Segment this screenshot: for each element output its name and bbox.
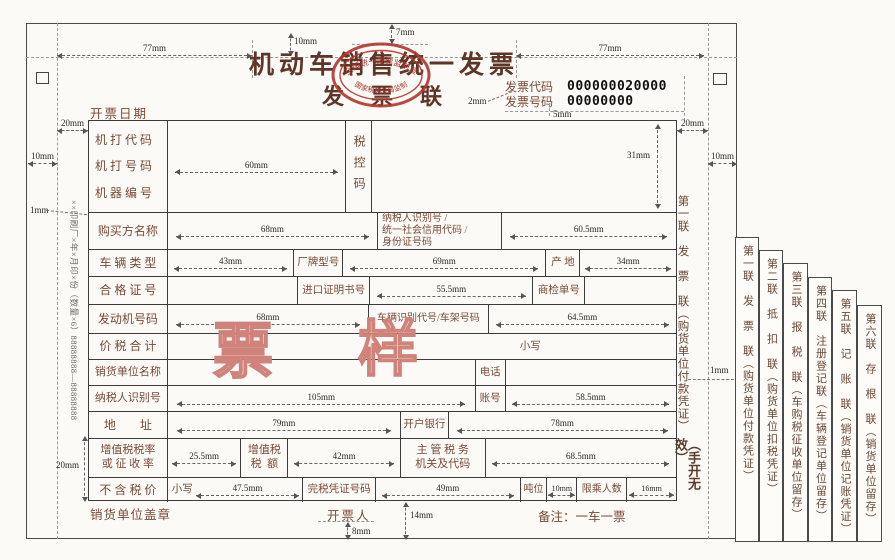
cell-buyer-label: 购买方名称	[89, 213, 167, 249]
seller-seal-label: 销货单位盖章	[90, 504, 171, 523]
machine-id-label: 机 器 编 号	[95, 186, 152, 201]
invoice-table: 机 打 代 码 机 打 号 码 机 器 编 号 60mm 税控码 31mm 购买…	[88, 120, 677, 501]
measure-label: 105mm	[307, 393, 335, 402]
cell-brand-model-label: 厂牌型号	[293, 250, 342, 276]
stamp-arc-top-text: 全国统一发票监制章	[343, 56, 420, 77]
measure-69mm: 69mm	[350, 257, 538, 269]
measure-58.5mm: 58.5mm	[512, 393, 669, 405]
cell-vat-rate-label: 增值税税率 或 征 收 率	[89, 439, 167, 477]
cell-vat-amount-value: 42mm	[287, 439, 400, 477]
cell-passengers-label: 限乘人数	[576, 478, 626, 502]
cell-tax-authority-label: 主 管 税 务 机关及代码	[400, 439, 485, 477]
cell-seller-label: 销货单位名称	[89, 360, 167, 385]
measure-79mm: 79mm	[177, 419, 391, 431]
measure-68mm-buyer: 68mm	[176, 225, 369, 237]
vehicle-type-label: 车 辆 类 型	[99, 256, 156, 271]
measure-60.5mm: 60.5mm	[510, 225, 667, 237]
buyer-label: 购买方名称	[98, 224, 158, 239]
cell-vin-value: 64.5mm	[488, 305, 676, 333]
svg-text:国家税务总局监制: 国家税务总局监制	[353, 80, 409, 96]
measure-label: 47.5mm	[233, 484, 263, 493]
copy-strip-1: 第一联 发 票 联（购货单位付款凭证）	[735, 237, 759, 542]
remark-label: 备注：一车一票	[538, 506, 626, 525]
copy-strip-3: 第三联 报 税 联（车购税征收单位留存）	[783, 263, 808, 542]
row-vat: 增值税税率 或 征 收 率 25.5mm 增值税 税 额 42mm 主 管 税 …	[89, 438, 676, 477]
measure-68.5mm: 68.5mm	[492, 452, 669, 464]
measure-60mm: 60mm	[175, 161, 338, 173]
taxid-label-line3: 身份证号码	[382, 237, 432, 249]
row-buyer: 购买方名称 68mm 纳税人识别号 / 统一社会信用代码 / 身份证号码 60.…	[89, 212, 676, 249]
invoice-supervision-stamp: 全国统一发票监制章 国家税务总局监制	[330, 41, 432, 109]
cell-tax-control-area: 31mm	[371, 121, 676, 212]
measure-10mm-tonnage: 10mm	[548, 485, 575, 496]
tax-authority-label-line2: 机关及代码	[415, 458, 470, 472]
cell-phone-label: 电话	[475, 360, 505, 385]
machine-number-label: 机 打 号 码	[95, 159, 152, 174]
row-taxpayer-id: 纳税人识别号 105mm 账号 58.5mm	[89, 385, 676, 411]
cell-address-value: 79mm	[167, 412, 400, 438]
taxpayer-id-label: 纳税人识别号	[95, 392, 161, 406]
copy-strip-5-label: 第五联 记 账 联（销货单位记账凭证）	[839, 291, 850, 541]
registration-square-right	[713, 73, 727, 85]
seller-label: 销货单位名称	[95, 366, 161, 380]
measure-label: 58.5mm	[576, 393, 606, 402]
stamp-arc-bottom-text: 国家税务总局监制	[353, 80, 409, 96]
origin-label: 产 地	[551, 256, 575, 269]
measure-49mm: 49mm	[382, 484, 514, 496]
measure-label: 60.5mm	[574, 225, 604, 234]
leader-line	[688, 379, 734, 380]
measure-label: 60mm	[245, 161, 268, 170]
copy-strip-4-label: 第四联 注册登记联（车辆登记单位留存）	[815, 278, 826, 541]
svg-text:全国统一发票监制章: 全国统一发票监制章	[343, 56, 420, 77]
measure-label: 25.5mm	[189, 452, 219, 461]
measure-label: 43mm	[219, 257, 242, 266]
measure-label: 64.5mm	[567, 313, 597, 322]
measure-43mm: 43mm	[174, 257, 287, 269]
measure-label: 69mm	[433, 257, 456, 266]
cell-tax-control: 税控码	[345, 121, 371, 212]
measure-label: 42mm	[333, 452, 356, 461]
cell-vehicle-type-value: 43mm	[167, 250, 294, 276]
measure-78mm: 78mm	[457, 419, 668, 431]
cell-vat-rate-value: 25.5mm	[167, 439, 241, 477]
cell-passengers-value: 16mm	[626, 478, 676, 502]
invoice-code-block: 发票代码 000000020000 发票号码 00000000	[505, 79, 690, 109]
handwritten-invalid-note: （手开无效）	[674, 438, 700, 502]
cell-buyer-value: 68mm	[167, 213, 377, 249]
copy-strip-5: 第五联 记 账 联（销货单位记账凭证）	[832, 290, 857, 542]
cell-account-value: 58.5mm	[505, 386, 676, 411]
cert-no-label: 合 格 证 号	[99, 283, 156, 298]
measure-label: 5mm	[553, 110, 572, 119]
copy-strip-4: 第四联 注册登记联（车辆登记单位留存）	[808, 277, 832, 542]
vat-rate-label-line2: 或 征 收 率	[102, 458, 154, 472]
cell-cert-value	[167, 277, 298, 304]
measure-label: 49mm	[436, 484, 459, 493]
cell-phone-value	[505, 360, 676, 385]
measure-label: 20mm	[56, 461, 79, 470]
printer-info-line: ××印刷厂×年×月印×份（数量×6）88888888—88888888	[68, 200, 80, 470]
cell-account-label: 账号	[475, 386, 505, 411]
cell-tax-authority-value: 68.5mm	[485, 439, 676, 477]
cell-inspection-label: 商检单号	[532, 277, 584, 304]
copy-strip-3-label: 第三联 报 税 联（车购税征收单位留存）	[790, 264, 801, 541]
cell-taxpayer-value: 105mm	[167, 386, 475, 411]
measure-34mm: 34mm	[585, 257, 671, 269]
measure-label: 55.5mm	[436, 285, 466, 294]
measure-label: 31mm	[627, 151, 650, 160]
cell-import-cert-label: 进口证明书号	[297, 277, 369, 304]
tax-cert-no-label: 完税凭证号码	[308, 483, 371, 496]
cell-engine-label: 发动机号码	[89, 305, 167, 333]
measure-label: 2mm	[468, 97, 487, 106]
phone-label: 电话	[480, 366, 501, 379]
invoice-number-value: 00000000	[567, 95, 634, 108]
cell-inspection-value	[584, 277, 676, 304]
cell-cert-label: 合 格 证 号	[89, 277, 167, 304]
vat-rate-label-line1: 增值税税率	[100, 444, 155, 458]
measure-label: 10mm	[552, 485, 572, 493]
tax-authority-label-line1: 主 管 税 务	[417, 444, 469, 458]
cell-machine-labels: 机 打 代 码 机 打 号 码 机 器 编 号	[89, 121, 167, 212]
measure-25.5mm: 25.5mm	[172, 452, 236, 464]
cell-bank-label: 开户银行	[400, 412, 448, 438]
cell-import-cert-value: 55.5mm	[369, 277, 532, 304]
code-block-edge-guide	[684, 76, 685, 121]
measure-label: 68mm	[261, 225, 284, 234]
cell-address-label: 地 址	[89, 412, 167, 438]
copy-strip-6-label: 第六联 存 根 联（销货单位留存）	[864, 306, 875, 541]
copy-strip-2-label: 第二联 抵 扣 联（购货单位扣税凭证）	[766, 251, 777, 541]
inner-copy-text: 第一联 发 票 联（购货单位付款凭证）	[676, 195, 688, 435]
measure-8mm	[344, 523, 352, 539]
cell-tonnage-value: 10mm	[546, 478, 576, 502]
right-margin-guide	[708, 23, 709, 539]
registration-square-left	[36, 72, 49, 84]
taxid-label-line1: 纳税人识别号 /	[382, 213, 447, 225]
passengers-label: 限乘人数	[582, 484, 622, 497]
measure-105mm: 105mm	[177, 393, 466, 405]
specimen-watermark-char2: 样	[358, 320, 418, 380]
measure-42mm: 42mm	[294, 452, 394, 464]
specimen-watermark-char1: 票	[213, 322, 273, 382]
cell-vehicle-type-label: 车 辆 类 型	[89, 250, 167, 276]
vat-amount-label-line2: 税 额	[251, 458, 279, 472]
measure-31mm	[654, 125, 662, 208]
inspection-no-label: 商检单号	[538, 284, 580, 297]
row-machine-codes: 机 打 代 码 机 打 号 码 机 器 编 号 60mm 税控码 31mm	[89, 121, 676, 212]
row-price-no-tax: 不 含 税 价 小写 47.5mm 完税凭证号码 49mm 吨位	[89, 477, 676, 502]
measure-label: 14mm	[410, 511, 433, 520]
cell-taxpayer-label: 纳税人识别号	[89, 386, 167, 411]
cell-bank-value: 78mm	[448, 412, 676, 438]
measure-label: 78mm	[551, 419, 574, 428]
cell-origin-label: 产 地	[545, 250, 579, 276]
engine-no-label: 发动机号码	[98, 312, 158, 327]
measure-47.5mm: 47.5mm	[196, 484, 300, 496]
tonnage-label: 吨位	[523, 484, 543, 497]
invoice-number-label: 发票号码	[505, 93, 567, 110]
row-vehicle-type: 车 辆 类 型 43mm 厂牌型号 69mm 产 地 34mm	[89, 249, 676, 276]
machine-code-label: 机 打 代 码	[95, 133, 152, 148]
measure-1mm-right: 1mm	[710, 366, 729, 375]
copy-strip-6: 第六联 存 根 联（销货单位留存）	[857, 305, 882, 542]
cell-vat-amount-label: 增值税 税 额	[240, 439, 287, 477]
cell-origin-value: 34mm	[579, 250, 676, 276]
cell-tax-cert-label: 完税凭证号码	[302, 478, 375, 502]
address-label: 地 址	[104, 418, 152, 433]
numerals-label: 小写	[520, 340, 541, 353]
measure-label: 7mm	[396, 28, 415, 37]
copy-strip-2: 第二联 抵 扣 联（购货单位扣税凭证）	[759, 250, 783, 542]
account-label: 账号	[480, 392, 501, 405]
measure-label: 16mm	[641, 485, 661, 493]
numerals-label: 小写	[172, 483, 193, 496]
price-no-tax-label: 不 含 税 价	[99, 483, 156, 498]
tax-control-label: 税控码	[351, 135, 366, 198]
code-block-underline	[505, 111, 684, 112]
measure-64.5mm: 64.5mm	[496, 313, 668, 325]
measure-label: 34mm	[617, 257, 640, 266]
invoice-spec-page: 77mm 77mm 10mm 7mm 机动车销售统一发票 发票联 全国统一发票监…	[0, 0, 895, 560]
row-address: 地 址 79mm 开户银行 78mm	[89, 411, 676, 438]
cell-price-no-tax-label: 不 含 税 价	[89, 478, 167, 502]
cell-brand-model-value: 69mm	[342, 250, 545, 276]
bank-label: 开户银行	[403, 418, 445, 431]
brand-model-label: 厂牌型号	[297, 256, 339, 269]
cell-tax-cert-value: 49mm	[375, 478, 520, 502]
measure-label: 79mm	[272, 419, 295, 428]
cell-taxid-label: 纳税人识别号 / 统一社会信用代码 / 身份证号码	[377, 213, 501, 249]
cell-total-label: 价 税 合 计	[89, 334, 167, 359]
measure-16mm: 16mm	[629, 485, 674, 496]
leader-line	[549, 103, 550, 116]
cell-price-no-tax-value: 小写 47.5mm	[167, 478, 303, 502]
measure-14mm	[402, 503, 410, 539]
total-label: 价 税 合 计	[99, 339, 156, 354]
row-certificate: 合 格 证 号 进口证明书号 55.5mm 商检单号	[89, 276, 676, 304]
copy-strip-1-label: 第一联 发 票 联（购货单位付款凭证）	[742, 238, 753, 541]
taxid-label-line2: 统一社会信用代码 /	[382, 225, 467, 237]
cell-taxid-value: 60.5mm	[501, 213, 676, 249]
import-cert-label: 进口证明书号	[302, 284, 365, 297]
measure-20mm-bottom	[81, 437, 89, 501]
cell-tonnage-label: 吨位	[520, 478, 547, 502]
vat-amount-label-line1: 增值税	[248, 444, 281, 458]
cell-machine-value: 60mm	[167, 121, 345, 212]
measure-label: 68.5mm	[566, 452, 596, 461]
invoice-code-value: 000000020000	[567, 80, 667, 93]
measure-55.5mm: 55.5mm	[377, 285, 526, 297]
measure-label: 8mm	[352, 527, 371, 536]
